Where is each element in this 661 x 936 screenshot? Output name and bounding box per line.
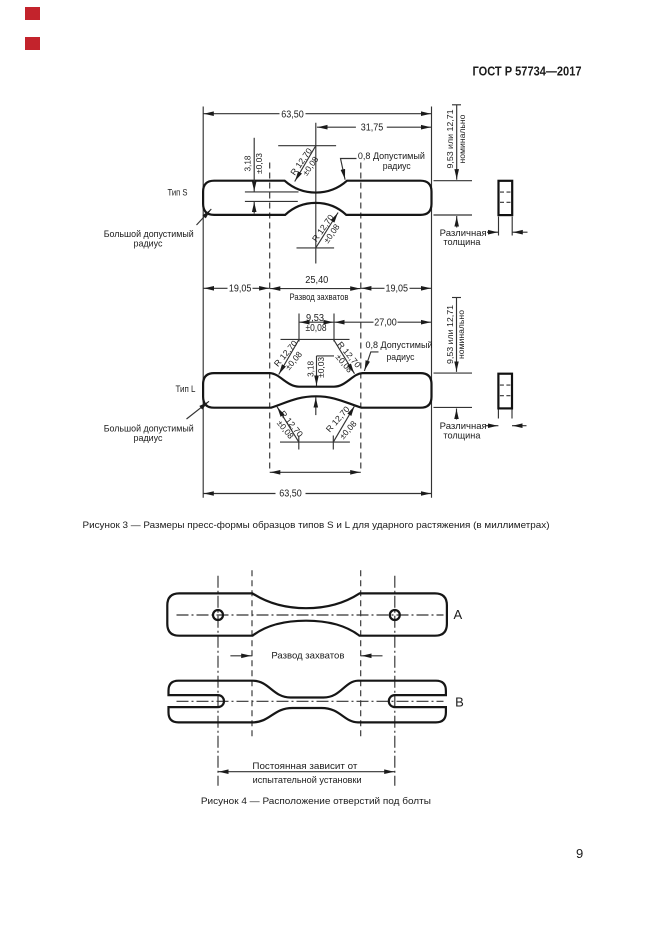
svg-text:±0,08: ±0,08 [306,323,327,334]
svg-text:3,18: 3,18 [243,155,253,171]
svg-text:номинально: номинально [456,310,466,359]
svg-text:0,8 Допустимый: 0,8 Допустимый [366,340,433,351]
svg-text:радиус: радиус [134,239,163,250]
svg-text:9,53 или 12,71: 9,53 или 12,71 [445,305,455,364]
svg-text:19,05: 19,05 [229,283,252,294]
svg-text:ГОСТ Р 57734—2017: ГОСТ Р 57734—2017 [473,65,582,79]
svg-text:25,40: 25,40 [305,275,328,286]
svg-text:Развод захватов: Развод захватов [271,650,344,661]
svg-text:Рисунок 3 — Размеры пресс-форм: Рисунок 3 — Размеры пресс-формы образцов… [83,520,550,531]
svg-text:9,53 или 12,71: 9,53 или 12,71 [445,109,455,168]
svg-text:радиус: радиус [134,433,163,444]
svg-text:Тип L: Тип L [176,384,196,395]
svg-text:3,18: 3,18 [305,361,315,377]
svg-text:63,50: 63,50 [279,489,302,500]
svg-text:Развод захватов: Развод захватов [290,292,349,303]
svg-text:A: A [453,607,462,622]
svg-text:Тип S: Тип S [168,188,188,199]
svg-text:27,00: 27,00 [374,317,397,328]
svg-text:±0,03: ±0,03 [316,357,326,378]
svg-text:9: 9 [576,846,583,861]
svg-text:31,75: 31,75 [361,122,384,133]
svg-text:±0,03: ±0,03 [254,153,264,174]
svg-text:63,50: 63,50 [281,109,304,120]
svg-text:19,05: 19,05 [386,283,409,294]
svg-text:радиус: радиус [383,161,411,172]
svg-text:испытательной установки: испытательной установки [253,775,362,786]
svg-text:Рисунок 4 — Расположение отвер: Рисунок 4 — Расположение отверстий под б… [201,796,431,807]
svg-text:B: B [455,695,464,710]
svg-text:номинально: номинально [457,114,467,163]
svg-text:толщина: толщина [443,237,481,248]
svg-text:радиус: радиус [387,352,415,363]
svg-text:Постоянная зависит от: Постоянная зависит от [252,761,358,772]
svg-text:толщина: толщина [443,431,481,442]
